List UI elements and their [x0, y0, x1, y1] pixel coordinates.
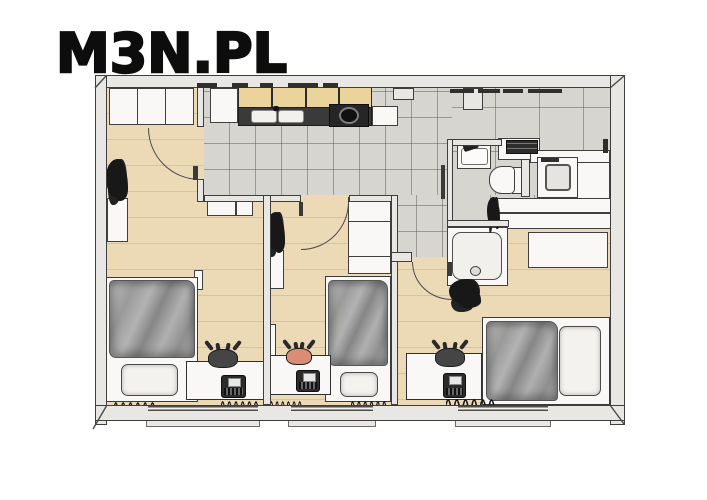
radio-grille: [446, 388, 463, 395]
bedroom-middle-chair: [282, 339, 316, 365]
radio-display: [228, 378, 242, 387]
wall-bath-north: [447, 139, 502, 146]
door-handle-bedroom-left: [193, 166, 198, 180]
chair-armrest: [431, 339, 441, 350]
chair-armrest: [232, 340, 242, 351]
bed-duvet: [109, 280, 195, 358]
floorplan-page: M3N.PL: [0, 0, 707, 500]
wall-right: [610, 75, 625, 425]
radio-grille: [299, 382, 317, 389]
wall-room2-hall: [391, 195, 398, 405]
laundry-right-cabinet: [577, 162, 610, 202]
bedroom-right-bed: [482, 317, 610, 405]
bedroom-left-wall-plant: [106, 159, 126, 197]
chair-seat: [435, 348, 465, 367]
vent-dash-icon: [197, 83, 217, 88]
door-panel-bathroom: [441, 165, 445, 199]
vent-dash-icon: [288, 83, 318, 88]
chair-seat: [286, 348, 312, 365]
wall-mounted-item: [603, 139, 608, 153]
bedroom-left-wardrobe: [109, 88, 194, 125]
wall-rooms-1-2: [263, 195, 271, 405]
wall-kitchen-south-right: [349, 195, 393, 202]
chair-armrest: [306, 339, 316, 350]
bedroom-left-nightstand-2: [236, 201, 253, 216]
window-sill: [146, 421, 260, 427]
bed-duvet: [328, 280, 388, 366]
bedroom-left-chair: [204, 340, 242, 368]
laundry-counter-band-2: [495, 213, 613, 229]
vent-dash-icon: [478, 89, 500, 93]
washing-machine-door-icon: [545, 164, 571, 191]
wall-room1-kitchen-upper: [197, 86, 204, 127]
window-bedroom-right: [458, 406, 548, 411]
vent-dash-icon: [450, 89, 474, 93]
kitchen-burner-icon: [339, 107, 359, 124]
kitchen-faucet-icon: [273, 106, 279, 111]
hallway-tile-floor: [391, 195, 452, 257]
vent-dash-icon: [232, 83, 248, 88]
kitchen-sink-basin-right: [278, 110, 304, 123]
radio-display: [449, 376, 462, 385]
bed-pillow: [121, 364, 178, 396]
chair-armrest: [459, 339, 469, 350]
wall-room1-kitchen-lower: [197, 179, 204, 202]
wall-left: [95, 75, 107, 425]
bedroom-right-radio: [443, 373, 466, 398]
bedroom-middle-bed: [325, 276, 391, 402]
window-bedroom-middle: [291, 406, 373, 411]
bedroom-left-wall-shelf: [107, 198, 128, 242]
wall-bath-divider: [521, 159, 530, 197]
bedroom-left-nightstand-1: [207, 201, 236, 216]
kitchen-sink-basin-left: [251, 110, 277, 123]
chair-seat: [208, 349, 238, 368]
chair-armrest: [204, 340, 214, 351]
toilet-bowl: [489, 166, 515, 194]
door-panel-bedroom-right: [448, 262, 452, 276]
wall-kitchen-south-left: [204, 195, 301, 202]
kitchen-tall-cabinet: [210, 88, 238, 123]
wall-bath-west: [447, 139, 453, 227]
bed-duvet: [486, 321, 558, 401]
radio-display: [303, 373, 316, 382]
bedroom-right-chair: [431, 339, 469, 367]
shower-drain-icon: [470, 266, 481, 276]
shower-plant: [449, 279, 479, 304]
pillar-a: [393, 88, 414, 100]
wall-top: [95, 75, 625, 88]
radio-grille: [224, 388, 243, 395]
window-bedroom-left: [148, 406, 258, 411]
kitchen-counter-end: [372, 106, 398, 126]
bedroom-right-dresser: [528, 232, 608, 268]
door-panel-bedroom-middle: [299, 202, 303, 216]
vent-dash-icon: [323, 83, 338, 88]
bedroom-middle-radio: [296, 370, 320, 392]
dark-appliance: [506, 140, 538, 154]
bedroom-middle-wardrobe: [348, 197, 391, 274]
laundry-counter-band-1: [495, 198, 612, 213]
wall-hall-south: [391, 252, 412, 262]
washing-machine-controls: [541, 158, 559, 162]
vent-dash-icon: [528, 89, 562, 93]
vent-dash-icon: [503, 89, 523, 93]
vent-dash-icon: [260, 83, 273, 88]
bedroom-left-bed: [106, 277, 198, 402]
window-sill: [288, 421, 376, 427]
bedroom-left-radio: [221, 375, 246, 398]
window-sill: [455, 421, 551, 427]
bed-pillow: [559, 326, 601, 396]
wall-bath-south: [447, 220, 509, 227]
